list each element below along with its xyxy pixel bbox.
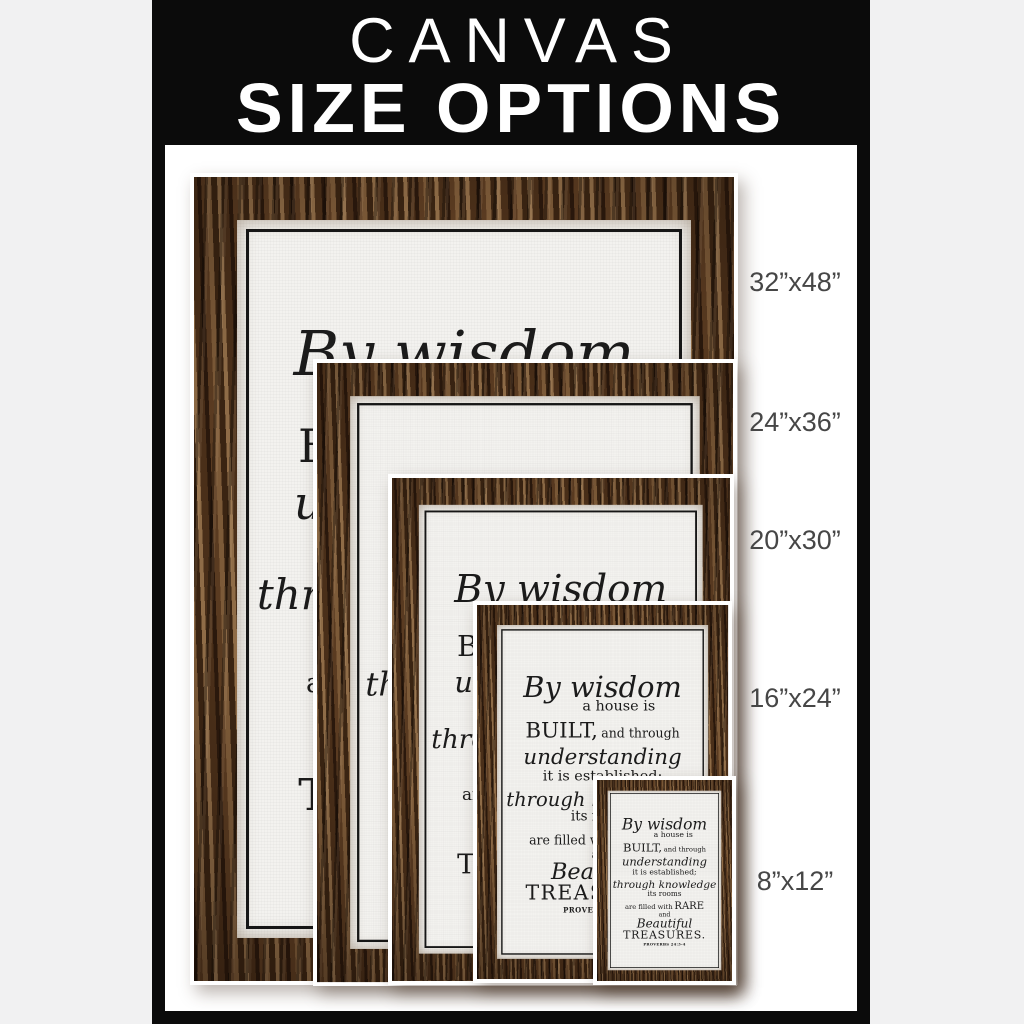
verse-line: a house is	[582, 698, 655, 715]
verse-segment: BUILT,	[623, 841, 662, 853]
verse-segment: a house is	[582, 698, 655, 715]
wood-frame: By wisdoma house isBUILT,and throughunde…	[597, 780, 732, 981]
verse-segment: PROVERBS 24:3-4	[643, 942, 685, 947]
verse-segment: a house is	[654, 830, 693, 839]
verse-line: BUILT,and through	[525, 719, 679, 740]
verse-line: PROVERBS 24:3-4	[643, 942, 685, 947]
header-title-size-options: SIZE OPTIONS	[152, 72, 870, 144]
size-label-8x12: 8”x12”	[725, 865, 857, 897]
verse-segment: understanding	[622, 855, 707, 867]
size-label-20x30: 20”x30”	[725, 524, 857, 556]
verse-segment: and through	[601, 727, 680, 740]
verse-segment: its rooms	[647, 890, 681, 898]
page-background: CANVAS SIZE OPTIONS By wisdoma house isB…	[0, 0, 1024, 1024]
verse-segment: BUILT,	[525, 719, 598, 740]
header: CANVAS SIZE OPTIONS	[152, 0, 870, 145]
header-title-canvas: CANVAS	[152, 8, 870, 74]
verse-segment: it is established;	[632, 868, 696, 877]
verse-line: understanding	[622, 855, 707, 867]
verse-line: TREASURES.	[623, 929, 706, 941]
verse-segment: TREASURES.	[623, 929, 706, 941]
size-label-32x48: 32”x48”	[725, 266, 857, 298]
size-label-16x24: 16”x24”	[725, 682, 857, 714]
verse-line: a house is	[654, 830, 693, 839]
verse-segment: RARE	[674, 901, 704, 911]
verse-segment: and through	[664, 846, 706, 853]
verse-line: are filled withRARE	[625, 901, 704, 911]
size-label-24x36: 24”x36”	[725, 406, 857, 438]
verse-segment: are filled with	[625, 903, 673, 910]
verse-artwork: By wisdoma house isBUILT,and throughunde…	[624, 805, 705, 957]
verse-line: understanding	[523, 745, 681, 767]
verse-line: BUILT,and through	[623, 841, 706, 853]
verse-segment: understanding	[523, 745, 681, 767]
canvas-display-area: By wisdoma house isBUILT,and throughunde…	[165, 145, 857, 1011]
canvas-preview-8x12: By wisdoma house isBUILT,and throughunde…	[597, 780, 732, 981]
canvas-face: By wisdoma house isBUILT,and throughunde…	[608, 791, 722, 971]
verse-line: it is established;	[632, 868, 696, 877]
verse-line: its rooms	[647, 890, 681, 898]
size-chart-panel: CANVAS SIZE OPTIONS By wisdoma house isB…	[152, 0, 870, 1024]
